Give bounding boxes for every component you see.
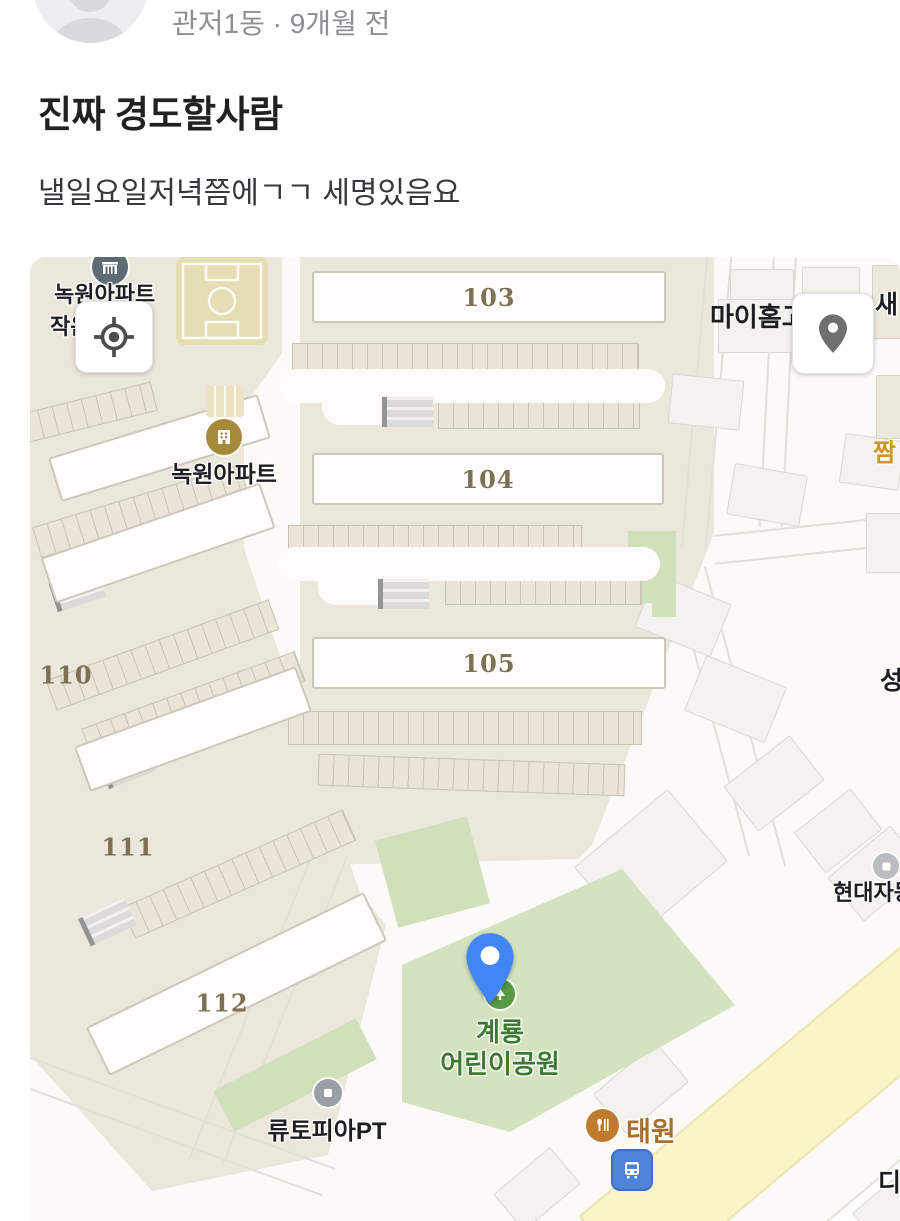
speed-bump-icon (378, 579, 429, 609)
post-meta: 관저1동 · 9개월 전 (172, 2, 390, 42)
post-title: 진짜 경도할사람 (38, 84, 283, 138)
building-104-label: 104 (461, 465, 514, 494)
ryutopia-label: 류토피아PT (268, 1111, 387, 1146)
pin-button[interactable] (792, 293, 874, 374)
map-pin-icon (816, 313, 850, 355)
map-view[interactable]: 103 104 105 110 111 112 녹원아파트 작은도서관 녹원아파… (30, 257, 900, 1221)
locate-button[interactable] (75, 301, 153, 373)
apartment-icon (206, 419, 242, 455)
crosshair-icon (93, 316, 135, 358)
hyundai-label: 현대자동 (833, 875, 900, 907)
bus-stop-icon (611, 1149, 653, 1191)
taewon-label: 태원 (626, 1110, 676, 1149)
restaurant-icon (586, 1109, 619, 1142)
building-112-label: 112 (195, 989, 248, 1018)
building-104: 104 (312, 453, 664, 505)
green-patch (652, 597, 676, 617)
building-103: 103 (312, 271, 666, 323)
di-label: 디 (878, 1163, 900, 1199)
post-body: 낼일요일저녁쯤에ㄱㄱ 세명있음요 (38, 168, 460, 212)
gym-icon (314, 1079, 342, 1107)
sae-label: 새 (875, 285, 898, 321)
sports-court (206, 385, 244, 417)
avatar[interactable] (33, 0, 148, 43)
seong-label: 성 (880, 661, 900, 697)
building-footprint (493, 1147, 581, 1221)
building-footprint (668, 373, 745, 430)
basketball-court (176, 257, 268, 345)
location-marker[interactable] (463, 931, 517, 1007)
parking-row (288, 711, 642, 745)
jjam-label: 짬 (873, 433, 896, 469)
building-105-label: 105 (462, 649, 515, 678)
building-110-label: 110 (39, 661, 92, 690)
apartment-label: 녹원아파트 (171, 455, 277, 489)
building-footprint (726, 463, 808, 527)
blue-pin-icon (463, 931, 517, 1007)
building-footprint (866, 513, 900, 573)
building-111-label: 111 (101, 833, 154, 862)
person-silhouette-icon (33, 0, 148, 43)
building-footprint (876, 375, 900, 439)
park-label-line2: 어린이공원 (440, 1044, 560, 1081)
building-105: 105 (312, 637, 666, 689)
speed-bump-icon (382, 397, 433, 427)
building-103-label: 103 (462, 283, 515, 312)
